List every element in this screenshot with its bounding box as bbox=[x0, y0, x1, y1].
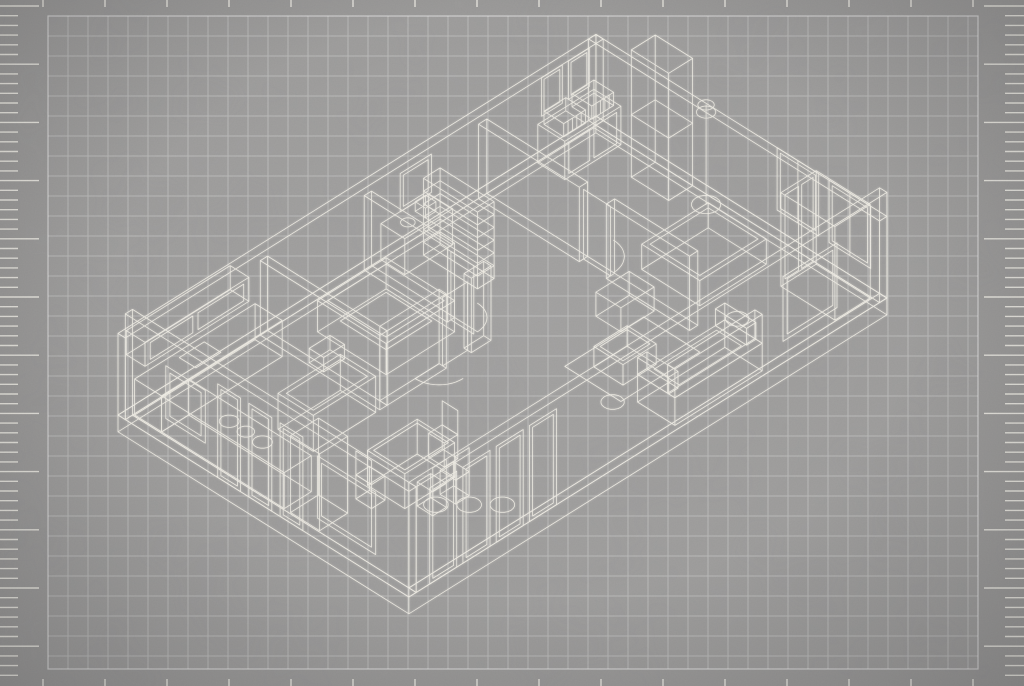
blueprint-page bbox=[0, 0, 1024, 686]
paper-grain-dark bbox=[0, 0, 1024, 686]
blueprint-canvas bbox=[0, 0, 1024, 686]
